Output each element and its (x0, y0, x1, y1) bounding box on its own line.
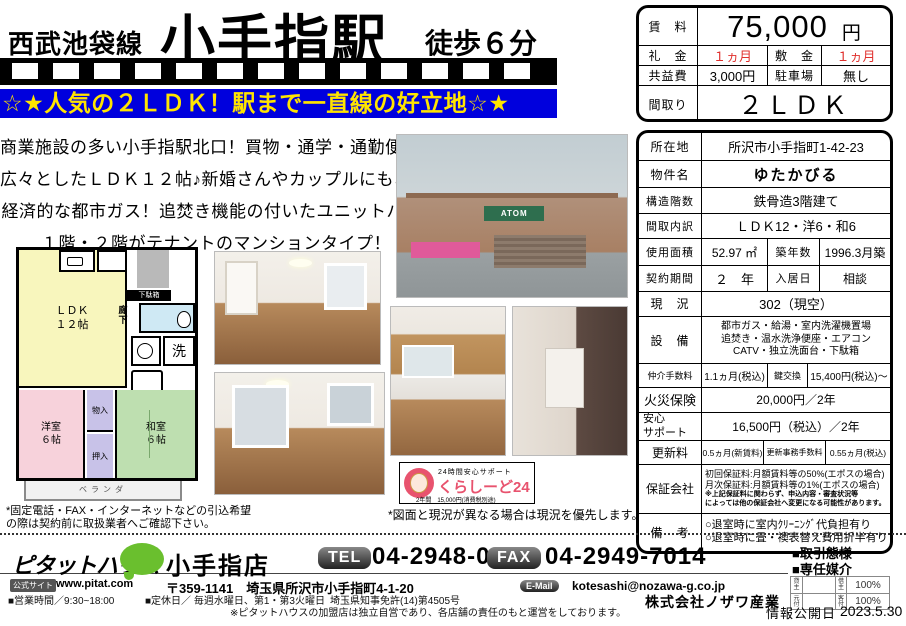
badge-line2: くらしーど24 (438, 476, 530, 497)
rent-label: 賃 料 (639, 8, 697, 45)
status-value: 302（現空） (701, 292, 890, 316)
photo-kitchen (390, 306, 506, 456)
term-value: ２ 年 (701, 266, 767, 290)
description-line-3: 経済的な都市ガス！追焚き機能の付いたユニットバス♪ (0, 197, 432, 222)
fire-insurance-value: 20,000円／2年 (701, 388, 890, 412)
filmstrip-decoration (0, 58, 557, 85)
property-name-value: ゆたかびる (701, 161, 890, 187)
shop-name: 小手指店 (166, 546, 270, 581)
note-left-line1: *固定電話・FAX・インターネットなどの引込希望 (6, 505, 251, 519)
western-room-label: 洋室 (41, 422, 61, 433)
company-name: 株式会社ノザワ産業 (645, 592, 780, 612)
franchise-disclaimer: ※ピタットハウスの加盟店は独立自営であり、各店舗の責任のもと運営をしております。 (230, 604, 626, 619)
kyoeki-value: 3,000円 (697, 66, 767, 85)
guarantor-line1: 初回保証料:月額賃料等の50%(エポスの場合) (705, 469, 885, 480)
photo-bedroom (214, 372, 385, 495)
balcony-window (232, 385, 289, 448)
description-line-1: 商業施設の多い小手指駅北口！買物・通学・通勤便利！ (0, 133, 432, 158)
details-table: 所在地 所沢市小手指町1-42-23 物件名 ゆたかびる 構造階数 鉄骨造3階建… (636, 130, 893, 554)
parking-value: 無し (821, 66, 890, 85)
kitchen-stove (97, 250, 127, 272)
toilet-bowl (177, 311, 191, 328)
madori-label: 間取り (639, 86, 697, 122)
veranda-strip: ベランダ (24, 481, 182, 501)
hallway-label: 廊下 (117, 305, 129, 325)
movein-value: 相談 (819, 266, 890, 290)
washbasin-unit (545, 348, 584, 407)
photo-building-exterior: ATOM (396, 134, 628, 298)
kitchen-counter (59, 250, 95, 272)
floor-plan: ＬＤＫ １２帖 下駄箱 廊下 洗 洋室 ６帖 物入 押入 和室 ６帖 (16, 247, 198, 481)
support-value: 16,500円（税込）／2年 (701, 413, 890, 441)
publish-date-label: 情報公開日 (766, 603, 836, 622)
madori-value: ２ＬＤＫ (697, 86, 890, 122)
support-label-line2: サポート (643, 427, 687, 441)
photo-living-room (214, 251, 381, 365)
futon-closet: 押入 (87, 434, 113, 478)
note-right: *図面と現況が異なる場合は現況を優先します。 (388, 508, 643, 523)
renewal-admin-label: 更新事務手数料 (763, 441, 825, 464)
key-exchange-label: 鍵交換 (767, 364, 807, 387)
reikin-value: １ヵ月 (697, 46, 767, 65)
laundry-space (131, 336, 161, 366)
equipment-line3: CATV・独立洗面台・下駄箱 (733, 346, 859, 359)
fire-insurance-label: 火災保険 (639, 388, 701, 412)
kitchen-sink (67, 257, 83, 266)
mascot-face-icon (404, 468, 434, 498)
catch-copy-banner: ☆★人気の２ＬＤＫ！駅まで一直線の好立地☆★ (0, 89, 557, 118)
kyoeki-label: 共益費 (639, 66, 697, 85)
shikikin-value: １ヵ月 (821, 46, 890, 65)
price-table: 賃 料 75,000 円 礼 金 １ヵ月 敷 金 １ヵ月 共益費 3,000円 … (636, 5, 893, 122)
entrance-area (137, 250, 169, 288)
floorplan-japanese-room: 和室 ６帖 (115, 390, 195, 478)
shop-shutter (494, 235, 586, 267)
kitchen-window (402, 345, 453, 378)
matrix-lessee-label: 借主 (835, 577, 846, 593)
fax-number: 04-2949-7014 (545, 543, 706, 571)
atom-sign: ATOM (484, 206, 544, 221)
shoe-cabinet-label: 下駄箱 (127, 290, 171, 301)
rent-unit: 円 (842, 18, 861, 45)
storage-closet: 物入 (87, 390, 113, 432)
walk-time: 徒歩６分 (425, 22, 537, 62)
status-label: 現 況 (639, 292, 701, 316)
rent-value: 75,000 (727, 9, 828, 45)
renewal-fee-value: 0.5ヵ月(新賃料) (701, 441, 763, 464)
reikin-label: 礼 金 (639, 46, 697, 65)
side-window (327, 383, 374, 427)
equipment-line1: 都市ガス・給湯・室内洗濯機置場 (721, 321, 871, 334)
real-estate-flyer: 西武池袋線 小手指駅 徒歩６分 ☆★人気の２ＬＤＫ！駅まで一直線の好立地☆★ 賃… (0, 0, 906, 626)
guarantor-line4: によっては他の保証会社へ変更になる可能性があります。 (705, 500, 886, 509)
structure-value: 鉄骨造3階建て (701, 188, 890, 212)
built-label: 築年数 (767, 239, 819, 265)
official-site-badge: 公式サイト (10, 579, 56, 592)
official-site-url: www.pitat.com (56, 578, 133, 590)
tel-badge: TEL (318, 547, 371, 569)
renewal-fee-label: 更新料 (639, 441, 701, 464)
tatami-line (149, 410, 150, 458)
agency-fee-value: 1.1ヵ月(税込) (701, 364, 767, 387)
area-value: 52.97 ㎡ (701, 239, 767, 265)
business-hours: ■営業時間／9:30~18:00 (8, 592, 114, 607)
guarantor-label: 保証会社 (639, 465, 701, 513)
guarantor-line2: 月次保証料:月額賃料等の1%(エポスの場合) (705, 480, 880, 491)
matrix-lessor-value (802, 577, 835, 593)
renewal-admin-value: 0.55ヵ月(税込) (825, 441, 890, 464)
room-door (225, 261, 258, 315)
term-label: 契約期間 (639, 266, 701, 290)
logo-bubble-icon (120, 543, 164, 575)
western-room-size: ６帖 (41, 435, 61, 446)
layout-value: ＬＤＫ12・洋6・和6 (701, 214, 890, 238)
matrix-lessor-label: 貸主 (791, 577, 802, 593)
laundry-drum (137, 343, 153, 359)
floorplan-western-room: 洋室 ６帖 (19, 390, 85, 478)
property-name-label: 物件名 (639, 161, 701, 187)
guarantor-line3: ※上記保証料に関わらず、申込内容・審査状況等 (705, 491, 858, 500)
address-label: 所在地 (639, 133, 701, 160)
fax-badge: FAX (487, 547, 541, 569)
email-badge: E-Mail (520, 580, 559, 592)
ldk-label: ＬＤＫ (56, 305, 89, 317)
built-value: 1996.3月築 (819, 239, 890, 265)
shikikin-label: 敷 金 (767, 46, 821, 65)
toilet-room (139, 303, 195, 333)
email-address: kotesashi@nozawa-g.co.jp (572, 579, 725, 593)
filmstrip-squares (12, 63, 545, 79)
address-value: 所沢市小手指町1-42-23 (701, 133, 890, 160)
movein-label: 入居日 (767, 266, 819, 290)
publish-date-value: 2023.5.30 (840, 603, 902, 619)
note-left-line2: の際は契約前に取扱業者へご確認下さい。 (6, 518, 215, 532)
ceiling-light (289, 259, 312, 267)
photo-washbasin (512, 306, 628, 456)
parking-label: 駐車場 (767, 66, 821, 85)
support-label-line1: 安心 (643, 413, 665, 427)
area-label: 使用面積 (639, 239, 701, 265)
shop-sign (411, 242, 480, 258)
structure-label: 構造階数 (639, 188, 701, 212)
equipment-line2: 追焚き・温水洗浄便座・エアコン (721, 334, 871, 347)
agency-fee-label: 仲介手数料 (639, 364, 701, 387)
layout-label: 間取内訳 (639, 214, 701, 238)
key-exchange-value: 15,400円(税込)～ (807, 364, 890, 387)
railway-line-name: 西武池袋線 (8, 24, 143, 61)
kurashido24-badge: 24時間安心サポート くらしーど24 2年間 15,000円(消費税別途) (399, 462, 535, 504)
dotted-separator (0, 533, 906, 535)
ldk-size-label: １２帖 (56, 319, 89, 331)
matrix-lessee-value: 100% (846, 577, 889, 593)
badge-line3: 2年間 15,000円(消費税別途) (416, 495, 496, 504)
equipment-label: 設 備 (639, 317, 701, 363)
room-window (324, 263, 367, 310)
remarks-line1: ○退室時に室内ｸﾘｰﾆﾝｸﾞ代負担有り (705, 519, 871, 533)
building-roofline (406, 193, 618, 198)
washer-label-box: 洗 (163, 336, 195, 366)
description-line-2: 広々としたＬＤＫ１２帖♪新婚さんやカップルにもおススメ！ (0, 165, 432, 190)
